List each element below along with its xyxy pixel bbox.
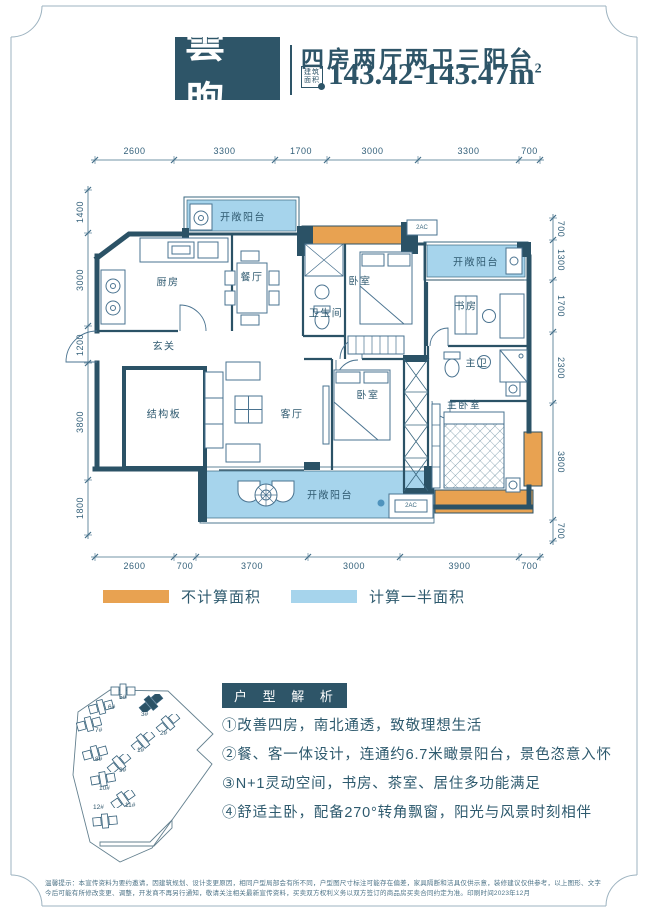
- legend-swatch: [103, 590, 169, 603]
- site-building-label: 7#: [95, 727, 102, 734]
- wardrobe-column: [404, 359, 428, 491]
- room-label: 客厅: [281, 406, 304, 421]
- dimension-bottom: 3700: [241, 561, 263, 571]
- dimension-left: 1200: [75, 333, 85, 355]
- dimension-left: 1800: [75, 496, 85, 518]
- analysis-item: ①改善四房，南北通透，致敬理想生活: [222, 712, 622, 741]
- dimension-top: 1700: [290, 146, 312, 156]
- area-badge-dot: [318, 83, 325, 90]
- site-building-label: 8#: [95, 756, 102, 763]
- legend-item: 不计算面积: [103, 586, 261, 607]
- room-label: 开敞阳台: [307, 487, 353, 502]
- room-label: 卧室: [349, 273, 372, 288]
- site-building-icon: [92, 812, 118, 835]
- dimension-bottom: 700: [177, 561, 194, 571]
- site-building-label: 5#: [119, 694, 126, 701]
- dimension-right: 2300: [556, 356, 566, 378]
- analysis-item: ④舒适主卧，配备270°转角飘窗，阳光与风景时刻相伴: [222, 799, 622, 828]
- site-building-label: 1#: [137, 747, 144, 754]
- ac-unit-label: 2AC: [416, 225, 428, 231]
- room-label: 卫生间: [309, 305, 344, 320]
- dimension-right: 700: [556, 221, 566, 238]
- room-label: 主卧室: [447, 397, 482, 412]
- legend-swatch: [291, 590, 357, 603]
- site-building-label: 12#: [93, 804, 104, 811]
- room-label: 厨房: [157, 274, 180, 289]
- dimension-bottom: 700: [521, 561, 538, 571]
- door-arcs: [66, 305, 450, 419]
- dimension-top: 3000: [361, 146, 383, 156]
- dimension-top: 3300: [457, 146, 479, 156]
- legend-label: 不计算面积: [181, 586, 261, 607]
- header-divider: [290, 45, 292, 95]
- room-label: 卧室: [357, 387, 380, 402]
- site-building-label: 6#: [108, 704, 115, 711]
- legend: 不计算面积计算一半面积: [103, 586, 465, 607]
- room-label: 主卫: [466, 355, 489, 370]
- furniture: [101, 204, 527, 523]
- dimension-bottom: 3000: [343, 561, 365, 571]
- analysis-list: ①改善四房，南北通透，致敬理想生活②餐、客一体设计，连通约6.7米瞰景阳台，景色…: [222, 712, 622, 828]
- site-building-label: 2#: [160, 730, 167, 737]
- ac-unit-label: 2AC: [405, 503, 417, 509]
- dimension-top: 700: [521, 146, 538, 156]
- room-label: 餐厅: [241, 269, 264, 284]
- site-building-label: 9#: [119, 767, 126, 774]
- project-logo-text: 雲煦: [185, 11, 280, 127]
- disclaimer-text: 温馨提示：本宣传资料为要约邀请，因建筑规划、设计变更原因，相同户型局部会有所不同…: [45, 879, 607, 899]
- analysis-item: ③N+1灵动空间，书房、茶室、居住多功能满足: [222, 770, 622, 799]
- dimension-left: 3000: [75, 268, 85, 290]
- room-label: 结构板: [147, 406, 182, 421]
- legend-item: 计算一半面积: [291, 586, 465, 607]
- area-badge-line1: 建筑: [304, 69, 320, 77]
- bay-window-fills: [302, 226, 542, 513]
- dimension-top: 3300: [213, 146, 235, 156]
- room-label: 开敞阳台: [453, 254, 499, 269]
- site-building-label: 11#: [125, 802, 135, 809]
- dimension-left: 3800: [75, 410, 85, 432]
- area-superscript: 2: [535, 62, 542, 77]
- dimension-right: 3800: [556, 450, 566, 472]
- dimension-right: 700: [556, 522, 566, 539]
- dimension-right: 1300: [556, 249, 566, 271]
- analysis-title: 户 型 解 析: [222, 683, 347, 708]
- dimension-right: 1700: [556, 295, 566, 317]
- dimension-left: 1400: [75, 200, 85, 222]
- area-value: 143.42-143.47m2: [328, 56, 542, 92]
- site-building-label: 10#: [99, 785, 110, 792]
- site-building-icon: [155, 714, 181, 737]
- analysis-item: ②餐、客一体设计，连通约6.7米瞰景阳台，景色恣意入怀: [222, 741, 622, 770]
- site-building-label: 3#: [141, 711, 148, 718]
- area-badge: 建筑 面积: [301, 66, 323, 88]
- dimension-top: 2600: [123, 146, 145, 156]
- dimension-bottom: 3900: [448, 561, 470, 571]
- project-logo: 雲煦: [175, 37, 280, 100]
- room-label: 书房: [455, 298, 478, 313]
- room-label: 开敞阳台: [220, 209, 266, 224]
- room-label: 玄关: [153, 338, 176, 353]
- legend-label: 计算一半面积: [369, 586, 465, 607]
- dimension-bottom: 2600: [123, 561, 145, 571]
